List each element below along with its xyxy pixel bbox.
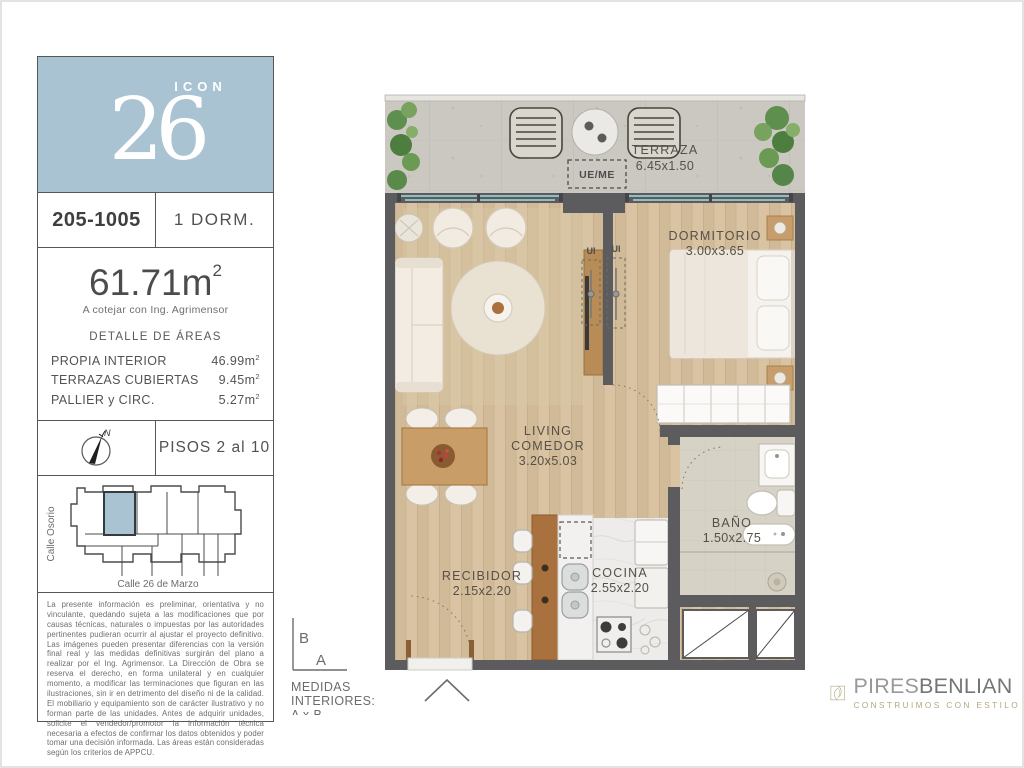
bano-label: BAÑO [712, 516, 752, 530]
terraza-dims: 6.45x1.50 [636, 159, 695, 173]
svg-text:UE/ME: UE/ME [579, 169, 615, 181]
svg-text:N: N [104, 428, 111, 438]
svg-text:MEDIDAS: MEDIDAS [291, 680, 351, 694]
side-table-icon [395, 214, 423, 242]
svg-text:B: B [299, 630, 309, 647]
nightstand-icon [767, 216, 793, 240]
bed-icon [670, 250, 795, 358]
svg-text:A: A [316, 652, 326, 669]
terrace-table-icon [572, 109, 618, 155]
entry-chevron-icon [425, 680, 469, 701]
svg-text:UI: UI [612, 244, 621, 254]
street-bottom-label: Calle 26 de Marzo [117, 579, 199, 590]
stove-icon [597, 617, 631, 652]
svg-text:COMEDOR: COMEDOR [511, 439, 585, 453]
logo-number: 26 [109, 87, 202, 173]
living-label: LIVING [524, 424, 572, 438]
bath-sink-icon [759, 444, 795, 486]
dormitorio-dims: 3.00x3.65 [686, 244, 745, 258]
compass-icon: N [74, 425, 120, 471]
legal-text: La presente información es preliminar, o… [47, 600, 264, 758]
brand-tagline: CONSTRUIMOS CON ESTILO [854, 700, 1020, 710]
brand-name: PIRESBENLIAN [854, 676, 1020, 698]
svg-text:A x B: A x B [291, 708, 322, 715]
area-row: TERRAZAS CUBIERTAS 9.45m2 [51, 371, 260, 390]
terrace-chair-icon [510, 108, 562, 158]
compass-row: N PISOS 2 al 10 [38, 421, 273, 476]
total-area: 61.71m2 [38, 262, 273, 301]
recibidor-dims: 2.15x2.20 [453, 584, 512, 598]
entry-threshold [408, 658, 472, 670]
kitchen-island-icon [532, 515, 558, 660]
brand-monogram-icon [830, 671, 846, 715]
terraza-label: TERRAZA [632, 143, 699, 157]
areas-table: PROPIA INTERIOR 46.99m2 TERRAZAS CUBIERT… [38, 352, 273, 410]
project-logo: ICON 26 [38, 57, 273, 193]
medidas-legend: B A MEDIDAS INTERIORES: A x B [291, 618, 375, 715]
room-terraza: UE/ME TERRAZA 6.45x1.50 [385, 95, 805, 195]
area-row: PALLIER y CIRC. 5.27m2 [51, 391, 260, 410]
floorplan: UE/ME TERRAZA 6.45x1.50 [285, 90, 815, 715]
floors-range: PISOS 2 al 10 [159, 439, 270, 457]
developer-brand: PIRESBENLIAN CONSTRUIMOS CON ESTILO [830, 666, 1020, 720]
toilet-icon [747, 490, 795, 516]
svg-text:INTERIORES:: INTERIORES: [291, 694, 375, 708]
armchair-icon [486, 208, 526, 248]
area-summary: 61.71m2 A cotejar con Ing. Agrimensor DE… [38, 248, 273, 421]
living-dims: 3.20x5.03 [519, 454, 578, 468]
keyplan-highlighted-unit [104, 492, 135, 535]
unit-type: 1 DORM. [174, 210, 255, 230]
cocina-dims: 2.55x2.20 [591, 581, 650, 595]
armchair-icon [433, 208, 473, 248]
door-post [469, 640, 474, 660]
info-sidebar: ICON 26 205-1005 1 DORM. 61.71m2 A cotej… [37, 56, 274, 722]
unit-header-row: 205-1005 1 DORM. [38, 193, 273, 248]
recibidor-label: RECIBIDOR [442, 569, 522, 583]
shower-drain-icon [768, 573, 786, 591]
bano-dims: 1.50x2.75 [703, 531, 762, 545]
unit-code: 205-1005 [52, 209, 141, 232]
wardrobe-icon [657, 385, 790, 423]
sofa-icon [395, 258, 443, 392]
legal-disclaimer: La presente información es preliminar, o… [38, 593, 273, 719]
service-shafts [683, 610, 795, 658]
floorplan-sheet: ICON 26 205-1005 1 DORM. 61.71m2 A cotej… [0, 0, 1024, 768]
areas-title: DETALLE DE ÁREAS [38, 331, 273, 343]
area-row: PROPIA INTERIOR 46.99m2 [51, 352, 260, 371]
area-note: A cotejar con Ing. Agrimensor [38, 304, 273, 316]
coffee-table-icon [484, 294, 512, 322]
cocina-label: COCINA [592, 566, 648, 580]
svg-text:UI: UI [587, 246, 596, 256]
street-left-label: Calle Osorio [46, 506, 57, 561]
keyplan: Calle Osorio Calle 26 de Marzo [38, 476, 273, 593]
door-post [406, 640, 411, 660]
keyplan-drawing: Calle Osorio Calle 26 de Marzo [38, 476, 272, 591]
dormitorio-label: DORMITORIO [668, 229, 761, 243]
